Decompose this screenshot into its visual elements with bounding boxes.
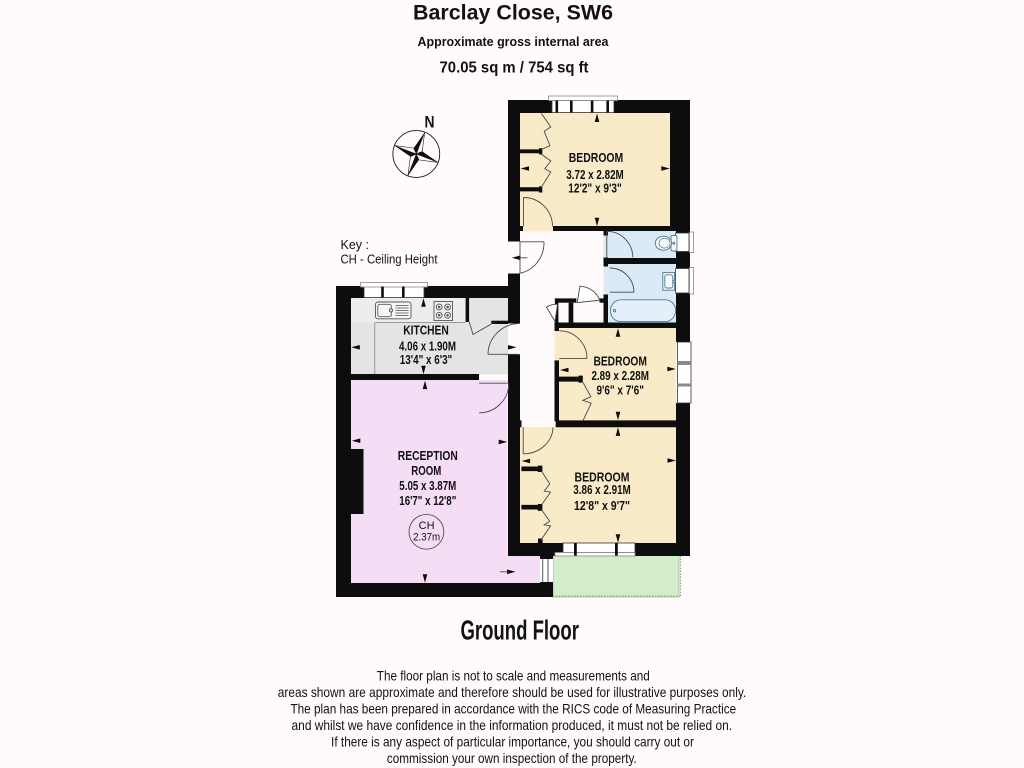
svg-text:3.72 x 2.82M: 3.72 x 2.82M — [566, 168, 624, 182]
svg-text:Approximate gross internal are: Approximate gross internal area — [418, 34, 610, 49]
svg-text:4.06 x 1.90M: 4.06 x 1.90M — [399, 339, 456, 353]
svg-text:CH: CH — [419, 520, 435, 532]
svg-text:If there is any aspect of part: If there is any aspect of particular imp… — [331, 735, 694, 750]
svg-text:commission your own inspection: commission your own inspection of the pr… — [387, 751, 637, 766]
svg-text:BEDROOM: BEDROOM — [569, 151, 624, 165]
svg-text:9'6" x 7'6": 9'6" x 7'6" — [596, 384, 644, 398]
svg-text:N: N — [425, 114, 435, 132]
svg-text:Key :: Key : — [341, 238, 370, 252]
svg-text:areas shown are approximate an: areas shown are approximate and therefor… — [278, 685, 747, 700]
svg-text:16'7" x 12'8": 16'7" x 12'8" — [399, 494, 456, 508]
svg-text:and whilst we have confidence: and whilst we have confidence in the inf… — [292, 718, 733, 733]
svg-text:2.89 x 2.28M: 2.89 x 2.28M — [591, 369, 649, 383]
svg-text:Barclay Close, SW6: Barclay Close, SW6 — [413, 1, 613, 24]
svg-text:Ground Floor: Ground Floor — [460, 614, 579, 645]
svg-text:ROOM: ROOM — [411, 464, 441, 478]
svg-text:2.37m: 2.37m — [413, 532, 440, 544]
svg-text:BEDROOM: BEDROOM — [593, 354, 647, 368]
svg-text:3.86 x 2.91M: 3.86 x 2.91M — [573, 483, 631, 497]
svg-text:12'2" x 9'3": 12'2" x 9'3" — [568, 182, 622, 196]
svg-text:70.05 sq m / 754 sq ft: 70.05 sq m / 754 sq ft — [440, 60, 590, 77]
svg-text:The floor plan is not to scale: The floor plan is not to scale and measu… — [377, 669, 650, 684]
svg-text:KITCHEN: KITCHEN — [403, 324, 449, 338]
svg-text:13'4" x 6'3": 13'4" x 6'3" — [400, 353, 453, 367]
svg-text:12'8" x 9'7": 12'8" x 9'7" — [574, 499, 630, 513]
svg-text:5.05 x 3.87M: 5.05 x 3.87M — [399, 479, 456, 493]
svg-text:The plan has been prepared in: The plan has been prepared in accordance… — [290, 702, 736, 717]
svg-text:CH - Ceiling Height: CH - Ceiling Height — [341, 253, 438, 267]
svg-text:RECEPTION: RECEPTION — [398, 449, 458, 463]
